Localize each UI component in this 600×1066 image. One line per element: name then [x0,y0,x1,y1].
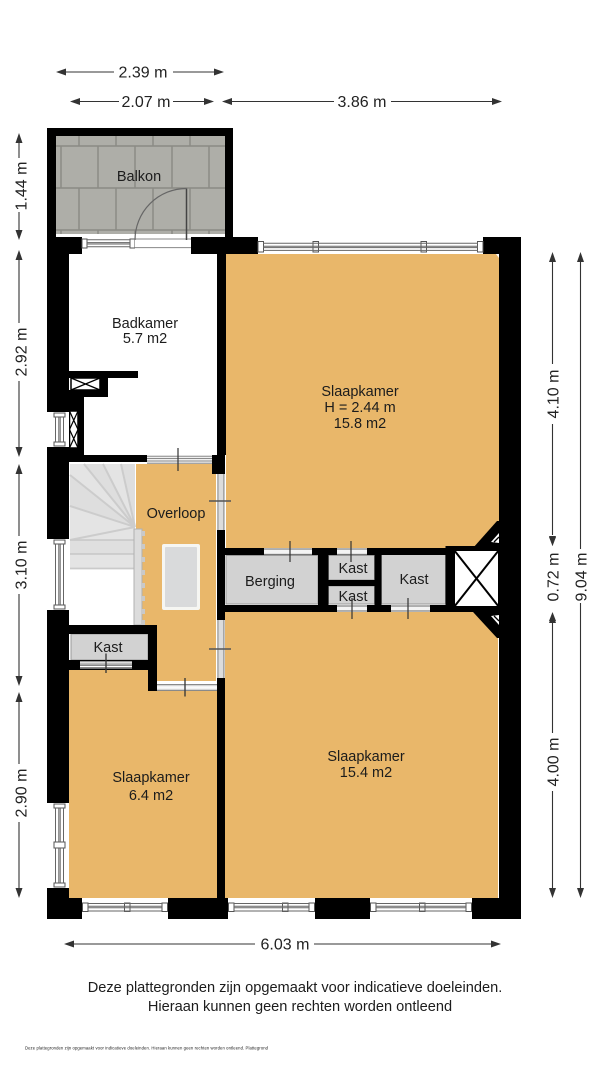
svg-text:9.04 m: 9.04 m [574,553,591,602]
svg-text:H = 2.44 m: H = 2.44 m [324,400,395,416]
svg-text:Balkon: Balkon [117,169,161,185]
svg-text:Kast: Kast [338,589,367,605]
svg-text:0.72 m: 0.72 m [546,553,563,602]
svg-text:2.92 m: 2.92 m [14,328,31,377]
svg-text:15.8 m2: 15.8 m2 [334,416,386,432]
svg-text:Overloop: Overloop [147,506,206,522]
svg-text:Kast: Kast [338,561,367,577]
svg-text:Kast: Kast [399,572,428,588]
svg-text:Kast: Kast [93,640,122,656]
svg-text:Deze plattegronden zijn opgema: Deze plattegronden zijn opgemaakt voor i… [88,980,503,996]
svg-text:5.7 m2: 5.7 m2 [123,331,167,347]
svg-text:2.39 m: 2.39 m [119,65,168,82]
svg-text:6.4 m2: 6.4 m2 [129,788,173,804]
svg-text:4.10 m: 4.10 m [546,370,563,419]
svg-text:Slaapkamer: Slaapkamer [112,770,190,786]
svg-text:4.00 m: 4.00 m [546,738,563,787]
svg-text:2.07 m: 2.07 m [122,94,171,111]
svg-text:1.44 m: 1.44 m [14,162,31,211]
svg-text:Badkamer: Badkamer [112,316,178,332]
svg-text:Berging: Berging [245,574,295,590]
svg-text:15.4 m2: 15.4 m2 [340,765,392,781]
svg-text:Hieraan kunnen geen rechten wo: Hieraan kunnen geen rechten worden ontle… [148,999,452,1015]
svg-text:3.86 m: 3.86 m [338,94,387,111]
svg-text:Slaapkamer: Slaapkamer [321,384,399,400]
svg-text:2.90 m: 2.90 m [14,769,31,818]
svg-text:6.03 m: 6.03 m [261,937,310,954]
svg-text:3.10 m: 3.10 m [14,541,31,590]
svg-text:Deze plattegronden zijn opgema: Deze plattegronden zijn opgemaakt voor i… [25,1046,269,1051]
svg-text:Slaapkamer: Slaapkamer [327,749,405,765]
